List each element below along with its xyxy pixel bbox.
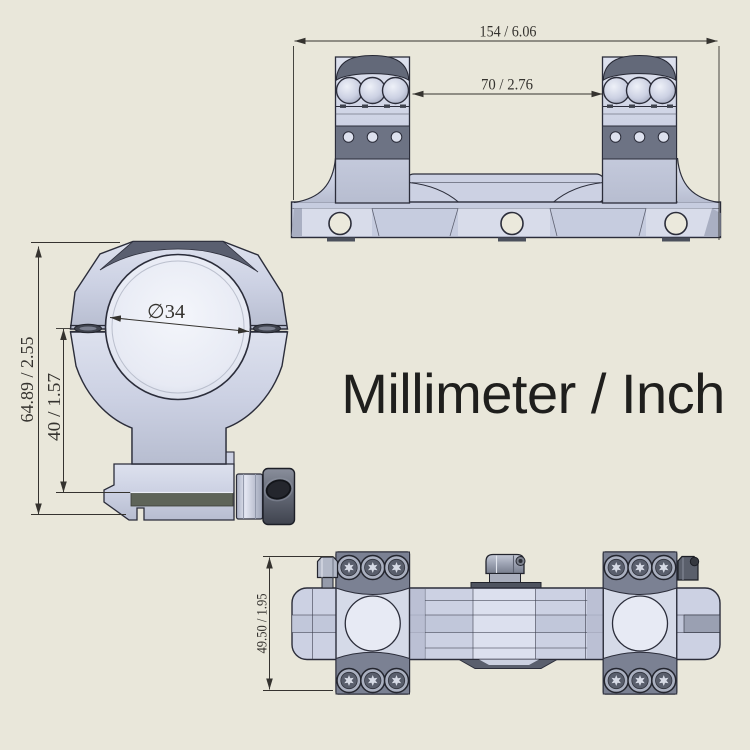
- base-mount-hole: [329, 213, 351, 235]
- left-clamp-block: [336, 552, 410, 694]
- bolt-washer: [490, 574, 521, 584]
- technical-drawing-canvas: 154 / 6.06 70 / 2.76: [0, 0, 750, 750]
- dim-overall-width-label: 49.50 / 1.95: [255, 594, 271, 654]
- right-end-slot: [684, 615, 720, 633]
- dim-center-height-label: 40 / 1.57: [44, 373, 64, 441]
- right-side-bolt: [678, 557, 699, 581]
- bolt-ring-detail: [690, 557, 698, 565]
- clamp-bolt-washer: [237, 474, 263, 519]
- dim-ring-spacing: 70 / 2.76: [413, 77, 603, 95]
- center-hex-bolt: [486, 555, 525, 584]
- recoil-lug-tab: [498, 238, 526, 242]
- title-text: Millimeter / Inch: [341, 362, 725, 425]
- right-ring-post: [603, 56, 677, 204]
- left-side-bolt: [318, 557, 338, 588]
- dim-ring-spacing-label: 70 / 2.76: [481, 77, 533, 94]
- front-ring-view: 64.89 / 2.55 40 / 1.57 ∅34: [17, 242, 295, 525]
- recoil-lug-tab: [327, 238, 355, 242]
- side-profile-view: 154 / 6.06 70 / 2.76: [292, 24, 721, 242]
- top-plan-view: 49.50 / 1.95: [255, 552, 721, 694]
- recoil-lug-tab: [662, 238, 690, 242]
- dim-overall-length-label: 154 / 6.06: [480, 24, 537, 41]
- left-ring-post: [336, 56, 410, 204]
- base-mount-hole: [501, 213, 523, 235]
- rail-slot: [131, 493, 233, 506]
- right-clamp-block: [603, 552, 677, 694]
- dim-overall-height-label: 64.89 / 2.55: [17, 337, 37, 423]
- dim-bore-diameter-label: ∅34: [147, 301, 185, 323]
- base-mount-hole: [665, 213, 687, 235]
- ring-bore: [106, 255, 251, 400]
